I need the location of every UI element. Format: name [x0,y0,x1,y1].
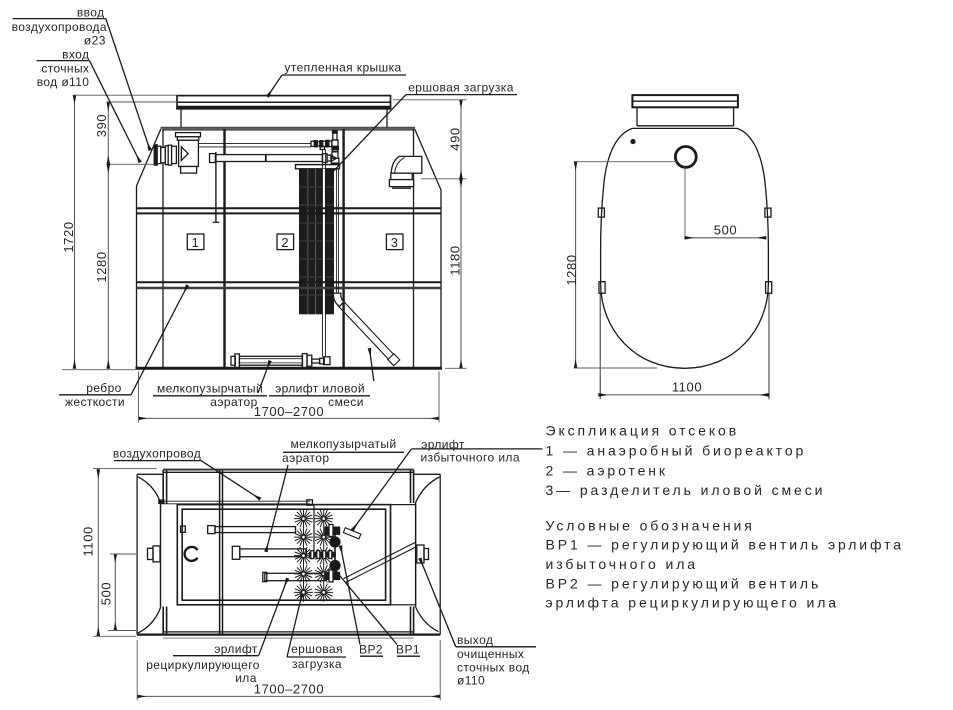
svg-text:ВР1 — регулирующий вентиль: ВР1 — регулирующий вентиль эрлифта [546,537,904,553]
svg-text:эрлифт иловой: эрлифт иловой [275,382,365,396]
svg-text:ершовая: ершовая [291,642,343,656]
svg-text:2 — аэротенк: 2 — аэротенк [546,463,668,479]
svg-text:500: 500 [99,582,114,606]
svg-text:вод ø110: вод ø110 [37,75,90,89]
svg-text:ВР2: ВР2 [359,643,383,657]
svg-text:ø110: ø110 [457,674,485,688]
svg-text:аэратор: аэратор [210,395,257,409]
svg-text:избыточного ила: избыточного ила [421,451,520,465]
svg-text:рециркулирующего: рециркулирующего [146,658,260,672]
svg-text:загрузка: загрузка [292,657,342,671]
svg-text:очищенных: очищенных [457,647,524,661]
svg-text:390: 390 [94,114,109,138]
svg-text:ø23: ø23 [84,34,106,48]
svg-text:ребро: ребро [86,381,121,395]
svg-text:воздухопровод: воздухопровод [113,447,201,461]
svg-text:1 — анаэробный биореактор: 1 — анаэробный биореактор [546,443,807,459]
svg-text:3— разделитель иловой смеси: 3— разделитель иловой смеси [546,482,826,498]
svg-text:1280: 1280 [94,251,109,282]
svg-text:1720: 1720 [61,221,76,252]
svg-text:1280: 1280 [564,254,579,285]
svg-text:490: 490 [448,127,463,151]
svg-text:эрлифт: эрлифт [214,642,258,656]
svg-text:2: 2 [281,235,289,250]
svg-text:1700–2700: 1700–2700 [254,404,324,419]
svg-text:смеси: смеси [328,395,364,409]
svg-text:мелкопузырчатый: мелкопузырчатый [157,382,263,396]
svg-text:избыточного ила: избыточного ила [546,556,698,572]
svg-text:аэратор: аэратор [282,451,329,465]
svg-text:эрлифта рециркулирующего ила: эрлифта рециркулирующего ила [546,595,839,611]
svg-text:сточных вод: сточных вод [457,661,530,675]
svg-text:1180: 1180 [448,245,463,275]
svg-text:Условные обозначения: Условные обозначения [546,518,755,534]
svg-text:вход: вход [62,48,89,62]
svg-text:ила: ила [235,671,257,685]
svg-text:жесткости: жесткости [65,395,125,409]
svg-text:ввод: ввод [77,6,105,20]
svg-text:ВР1: ВР1 [396,643,420,657]
svg-text:эрлифт: эрлифт [421,438,465,452]
svg-text:500: 500 [714,223,738,238]
svg-text:утепленная крышка: утепленная крышка [284,61,401,75]
svg-text:сточных: сточных [41,62,89,76]
svg-text:1700–2700: 1700–2700 [254,682,324,697]
svg-text:мелкопузырчатый: мелкопузырчатый [290,437,396,451]
svg-text:Экспликация отсеков: Экспликация отсеков [546,423,740,439]
svg-text:1: 1 [192,235,200,250]
svg-text:3: 3 [391,235,399,250]
svg-text:выход: выход [457,633,493,647]
svg-text:воздухопровода: воздухопровода [12,20,107,34]
svg-text:1100: 1100 [672,380,702,395]
svg-text:ВР2 — регулирующий вентиль: ВР2 — регулирующий вентиль [546,576,822,592]
svg-text:ершовая загрузка: ершовая загрузка [408,81,514,95]
svg-text:1100: 1100 [81,526,96,556]
